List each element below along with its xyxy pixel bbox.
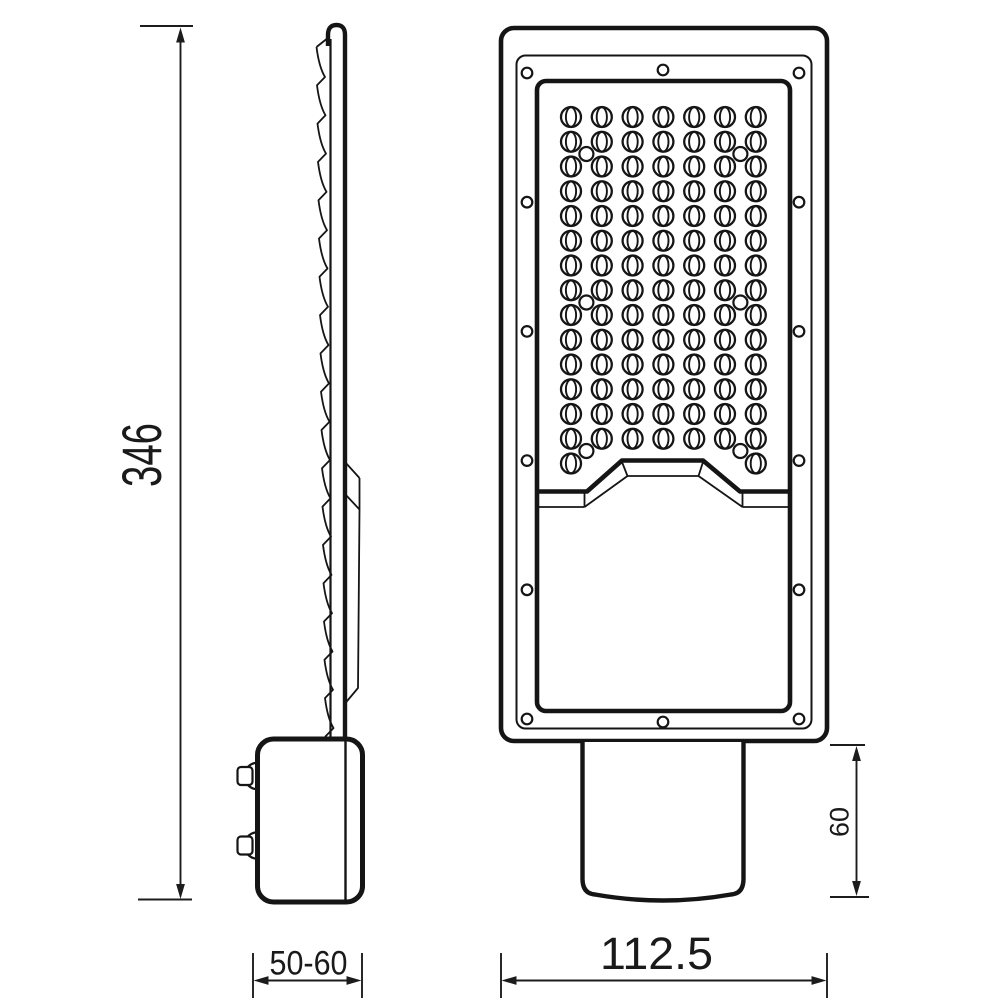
- dimension-overall-height: 346: [110, 26, 193, 900]
- mount-arm-front: [583, 742, 744, 901]
- arrowhead-down: [176, 884, 185, 899]
- arrowhead-left: [502, 976, 517, 985]
- junction-box-side: [258, 739, 363, 902]
- arrowhead-up: [852, 746, 861, 761]
- drawing-canvas: 346 50-60 112.5 60: [0, 0, 1000, 1000]
- arrowhead-right: [812, 976, 827, 985]
- dimension-socket-height-label: 60: [825, 807, 855, 837]
- terminal-knob-bolt: [238, 837, 253, 855]
- side-view: [238, 25, 363, 902]
- arrowhead-up: [176, 28, 185, 43]
- front-view: [501, 28, 827, 901]
- dimension-pole-diameter-label: 50-60: [270, 945, 348, 983]
- dimension-overall-height-label: 346: [110, 423, 173, 487]
- arrowhead-right: [347, 976, 362, 985]
- technical-drawing-street-light: 346 50-60 112.5 60: [0, 0, 1000, 1000]
- terminal-knob: [238, 763, 258, 789]
- dimension-socket-height: 60: [825, 745, 870, 897]
- dimension-pole-diameter: 50-60: [253, 945, 362, 999]
- dimension-housing-width: 112.5: [501, 928, 827, 998]
- terminal-knob-bolt: [238, 767, 253, 785]
- terminal-knobs: [238, 763, 258, 859]
- arrowhead-left: [254, 976, 269, 985]
- housing-outline: [501, 28, 827, 741]
- arrowhead-down: [852, 881, 861, 896]
- dimension-housing-width-label: 112.5: [600, 928, 713, 979]
- terminal-knob: [238, 832, 258, 858]
